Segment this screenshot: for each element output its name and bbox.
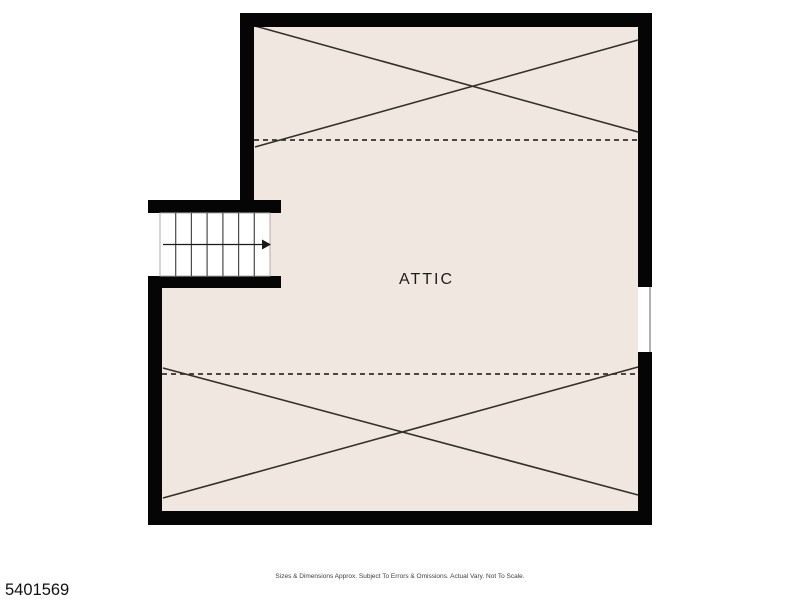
wall-stair-bottom [148,276,281,288]
wall-left-upper [240,13,254,213]
floorplan-canvas: ATTIC 5401569 Sizes & Dimensions Approx.… [0,0,800,600]
wall-top [240,13,652,27]
floorplan-drawing [0,0,800,600]
wall-stair-top [148,200,281,213]
wall-left-lower [148,276,162,525]
staircase [160,213,271,276]
wall-right-lower [638,352,652,525]
wall-right-upper [638,13,652,287]
mls-number: 5401569 [5,581,69,600]
disclaimer-text: Sizes & Dimensions Approx. Subject To Er… [0,573,800,580]
wall-bottom [148,511,652,525]
window-opening [638,287,652,352]
room-label-attic: ATTIC [399,271,454,289]
